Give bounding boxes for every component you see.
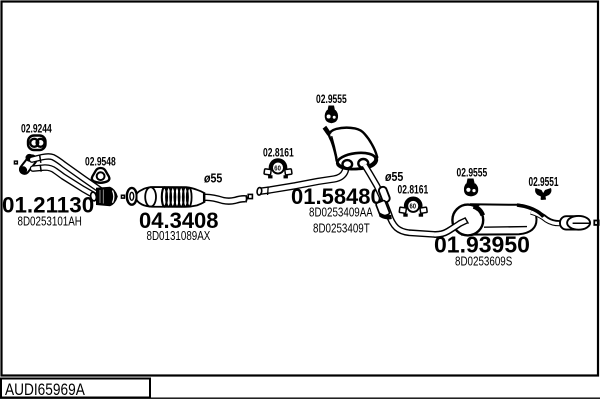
svg-text:8D0131089AX: 8D0131089AX [147, 230, 211, 243]
svg-text:02.9555: 02.9555 [457, 167, 488, 180]
svg-text:8D0253409AA: 8D0253409AA [309, 206, 373, 219]
svg-text:02.9244: 02.9244 [21, 123, 52, 136]
svg-text:02.9555: 02.9555 [316, 94, 347, 107]
svg-text:8D0253609S: 8D0253609S [455, 255, 512, 268]
svg-text:01.21130: 01.21130 [2, 193, 94, 218]
svg-text:8D0253101AH: 8D0253101AH [18, 215, 82, 228]
svg-text:60: 60 [274, 165, 281, 173]
svg-text:02.9551: 02.9551 [529, 175, 559, 189]
svg-text:02.8161: 02.8161 [263, 147, 294, 160]
svg-text:8D0253409T: 8D0253409T [313, 222, 370, 235]
svg-text:ø55: ø55 [385, 170, 404, 184]
svg-text:ø55: ø55 [204, 172, 223, 186]
svg-text:01.58480: 01.58480 [291, 184, 383, 209]
svg-text:AUDI65969A: AUDI65969A [5, 381, 86, 399]
svg-text:60: 60 [410, 203, 417, 211]
svg-text:02.8161: 02.8161 [398, 184, 429, 197]
